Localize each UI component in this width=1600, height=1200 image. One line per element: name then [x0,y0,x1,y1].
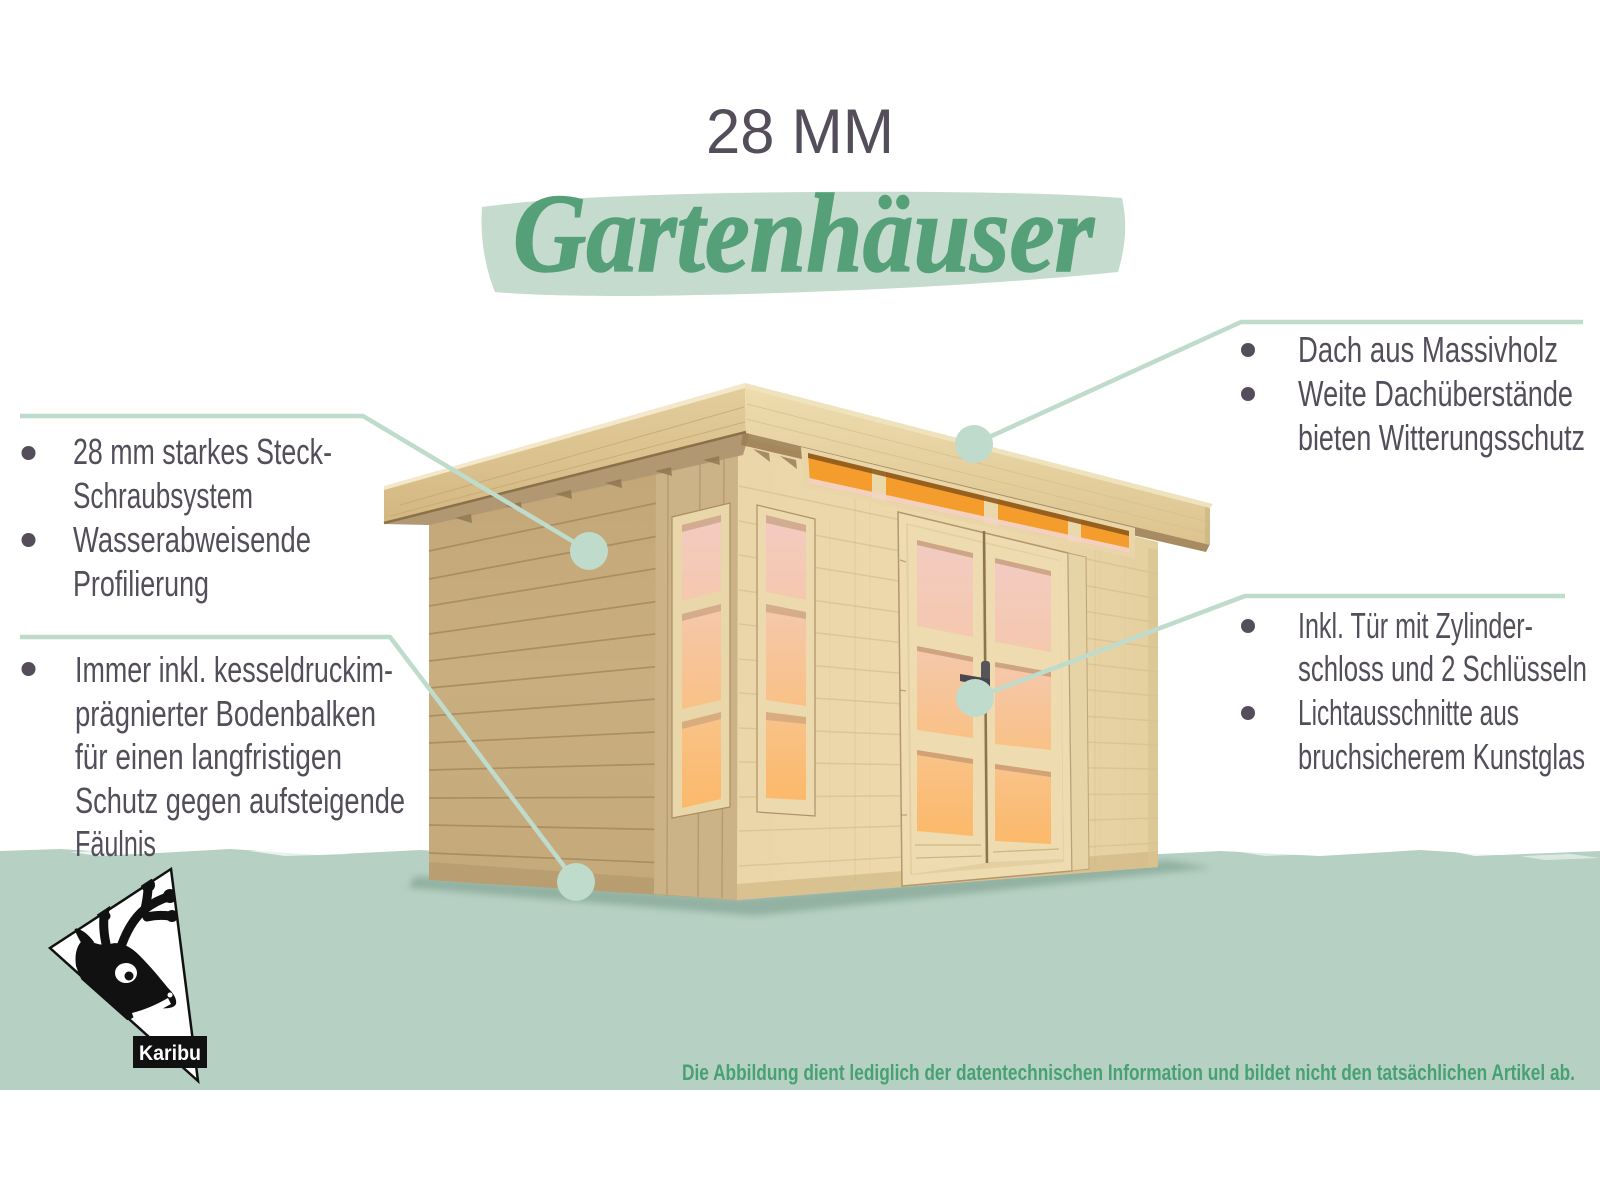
svg-text:bieten Witterungsschutz: bieten Witterungsschutz [1298,417,1585,458]
svg-text:Karibu: Karibu [139,1042,201,1065]
svg-text:Profilierung: Profilierung [73,563,209,604]
svg-text:für einen langfristigen: für einen langfristigen [75,736,342,777]
svg-text:prägnierter Bodenbalken: prägnierter Bodenbalken [75,693,376,734]
svg-text:Lichtausschnitte aus: Lichtausschnitte aus [1298,692,1519,733]
svg-text:28 mm starkes Steck-: 28 mm starkes Steck- [73,431,332,472]
svg-text:bruchsicherem Kunstglas: bruchsicherem Kunstglas [1298,736,1585,777]
svg-text:Immer inkl. kesseldruckim-: Immer inkl. kesseldruckim- [75,649,393,690]
svg-text:Wasserabweisende: Wasserabweisende [73,519,311,560]
svg-text:28 MM: 28 MM [706,97,894,167]
svg-text:Dach aus Massivholz: Dach aus Massivholz [1298,329,1558,370]
svg-text:Die Abbildung dient lediglich: Die Abbildung dient lediglich der datent… [682,1060,1575,1085]
svg-text:Schutz gegen aufsteigende: Schutz gegen aufsteigende [75,780,405,821]
svg-text:Fäulnis: Fäulnis [75,823,156,864]
svg-text:Inkl. Tür mit Zylinder-: Inkl. Tür mit Zylinder- [1298,605,1533,646]
svg-text:Weite Dachüberstände: Weite Dachüberstände [1298,373,1573,414]
svg-text:Schraubsystem: Schraubsystem [73,475,253,516]
svg-text:Gartenhäuser: Gartenhäuser [513,172,1095,296]
svg-text:schloss und 2 Schlüsseln: schloss und 2 Schlüsseln [1298,648,1587,689]
